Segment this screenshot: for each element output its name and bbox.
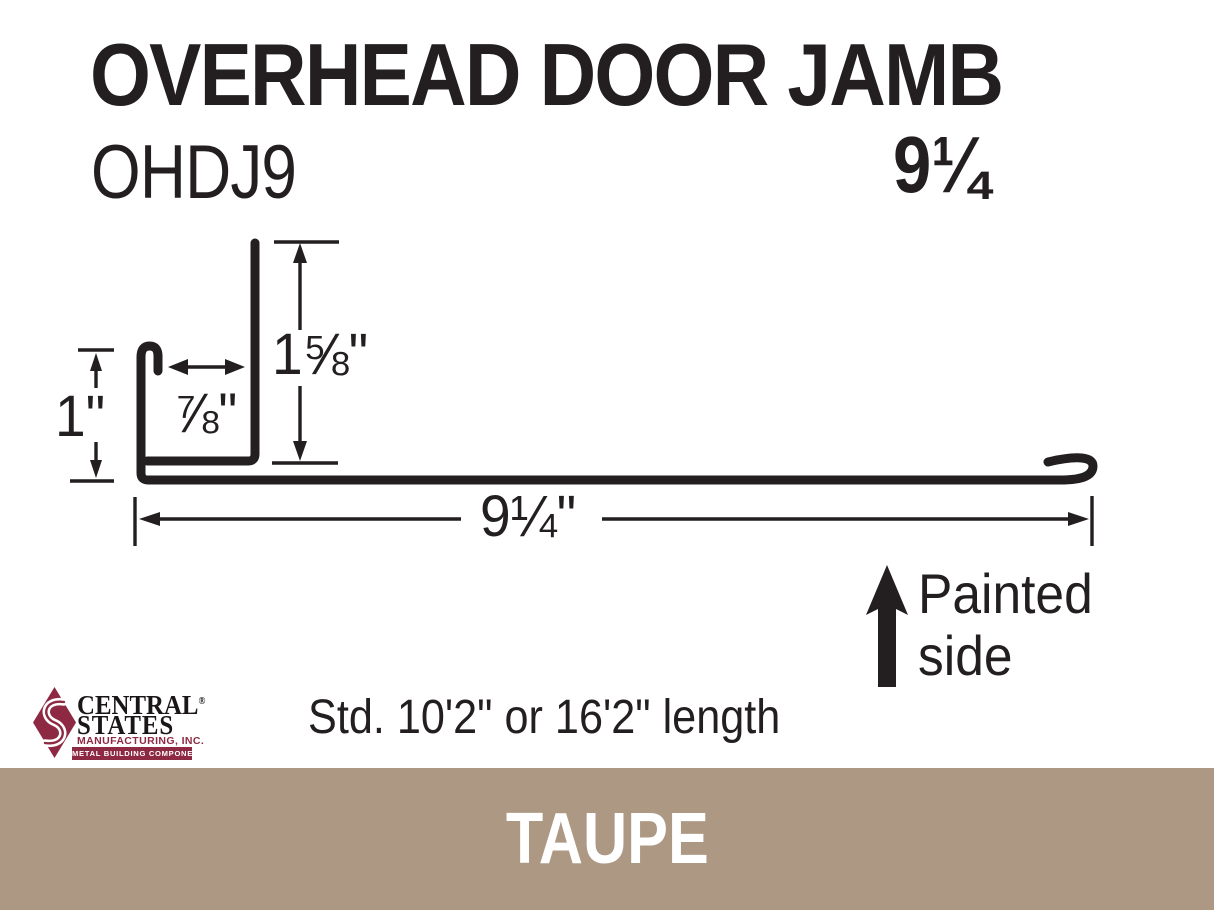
painted-side-line2: side [918,625,1093,687]
logo-banner: METAL BUILDING COMPONENTS [72,747,192,760]
dim-jamb-arrow-up-head [293,243,307,263]
dim-jamb-arrow-down-head [293,441,307,461]
dim-channel-arrow-right-head [225,359,245,375]
dim-channel-arrow-left-head [168,359,188,375]
dim-leg-arrow-down-head [90,460,102,478]
painted-side-line1: Painted [918,563,1093,625]
logo-diamond-icon [32,686,77,759]
company-logo: CENTRAL® STATES MANUFACTURING, INC. META… [30,682,205,762]
dim-base-ticks [135,496,1092,546]
dim-base-left-head [139,512,160,526]
dim-label-channel-width: ⅞" [174,385,237,441]
dim-label-leg-height: 1" [55,388,105,446]
length-note: Std. 10'2" or 16'2" length [308,692,780,745]
dim-label-base-width: 9¼" [480,488,576,546]
registered-mark: ® [198,696,205,707]
painted-side-arrow-icon [866,565,908,687]
dim-base-right-head [1068,512,1089,526]
color-band: TAUPE [0,768,1214,910]
spec-sheet: OVERHEAD DOOR JAMB OHDJ9 9¼ 1⅝" ⅞" 1" 9¼ [0,0,1214,910]
color-name-label: TAUPE [506,803,709,875]
logo-subtitle: MANUFACTURING, INC. [77,736,204,747]
dim-leg-arrow-up-head [90,353,102,371]
painted-side-label: Painted side [918,563,1093,687]
dim-label-jamb-height: 1⅝" [272,326,368,384]
